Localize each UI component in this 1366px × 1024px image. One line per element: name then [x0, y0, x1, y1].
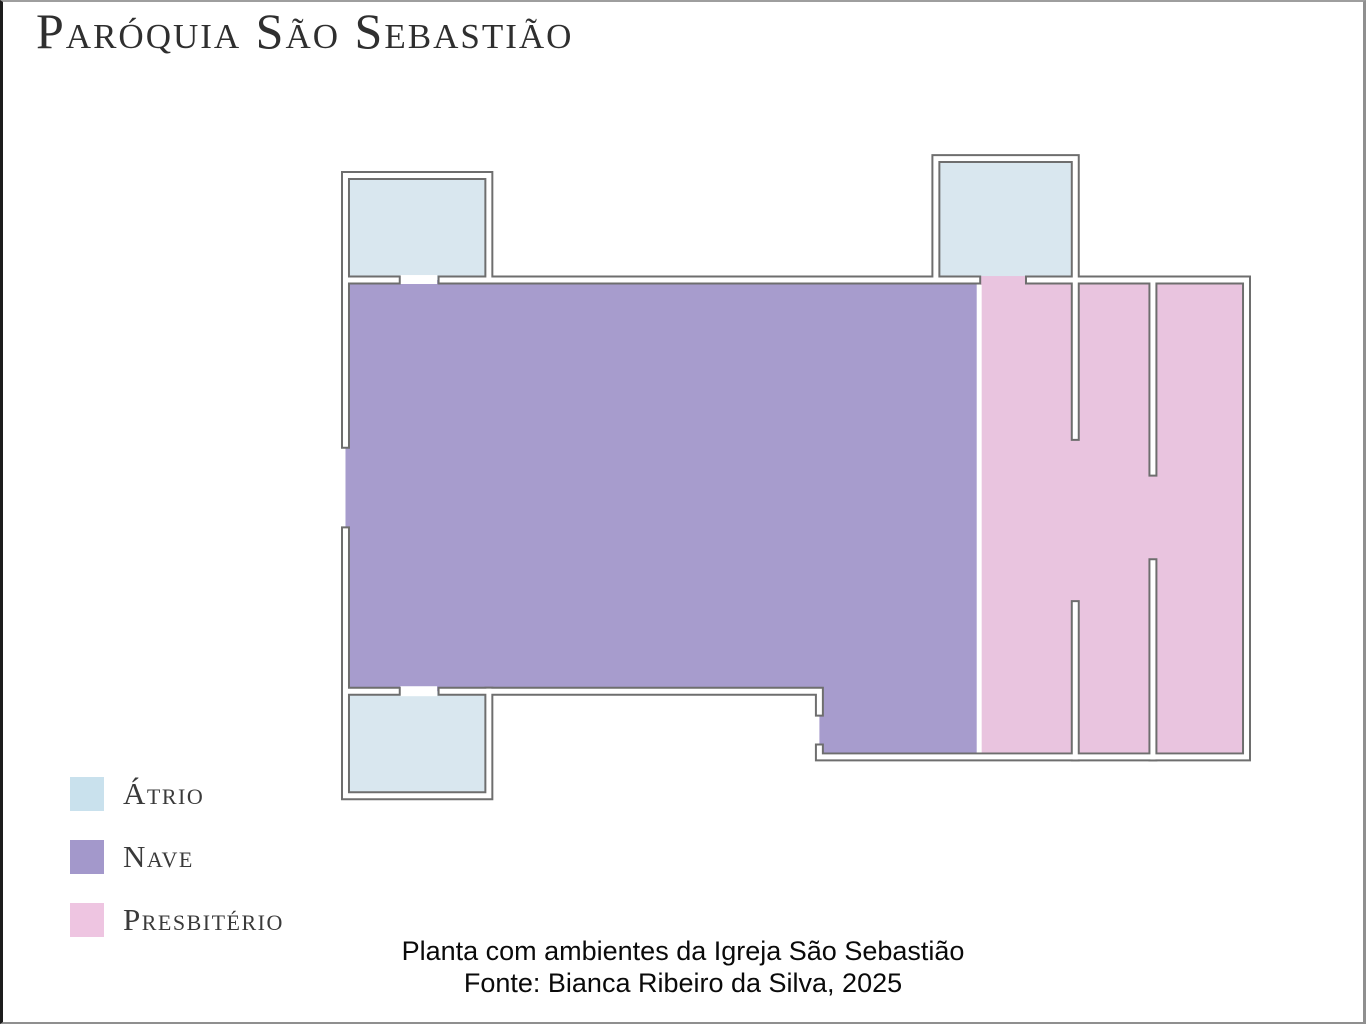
wall-segment [442, 691, 819, 712]
door-atrio-top-left [400, 275, 437, 284]
caption-line-2: Fonte: Bianca Ribeiro da Silva, 2025 [3, 967, 1363, 999]
legend-label-presbiterio: Presbitério [123, 902, 284, 938]
legend-label-atrio: Átrio [123, 776, 204, 812]
legend-item-nave: Nave [70, 839, 284, 875]
room-fills [345, 159, 1246, 796]
room-atrio-top-right [936, 159, 1075, 280]
legend-item-presbiterio: Presbitério [70, 902, 284, 938]
caption-line-1: Planta com ambientes da Igreja São Sebas… [3, 935, 1363, 967]
room-atrio-top-left [345, 175, 488, 280]
page: Paróquia São Sebastião [3, 2, 1363, 1022]
legend-swatch-nave [70, 840, 104, 874]
legend-label-nave: Nave [123, 839, 194, 875]
legend-swatch-presbiterio [70, 903, 104, 937]
legend-swatch-atrio [70, 777, 104, 811]
door-atrio-bottom-left [400, 686, 437, 696]
room-nave [345, 280, 976, 757]
room-presbiterio [982, 280, 1247, 757]
legend-item-atrio: Átrio [70, 776, 284, 812]
room-atrio-bottom-left [345, 691, 488, 796]
caption: Planta com ambientes da Igreja São Sebas… [3, 935, 1363, 999]
door-atrio-top-right [981, 276, 1026, 285]
